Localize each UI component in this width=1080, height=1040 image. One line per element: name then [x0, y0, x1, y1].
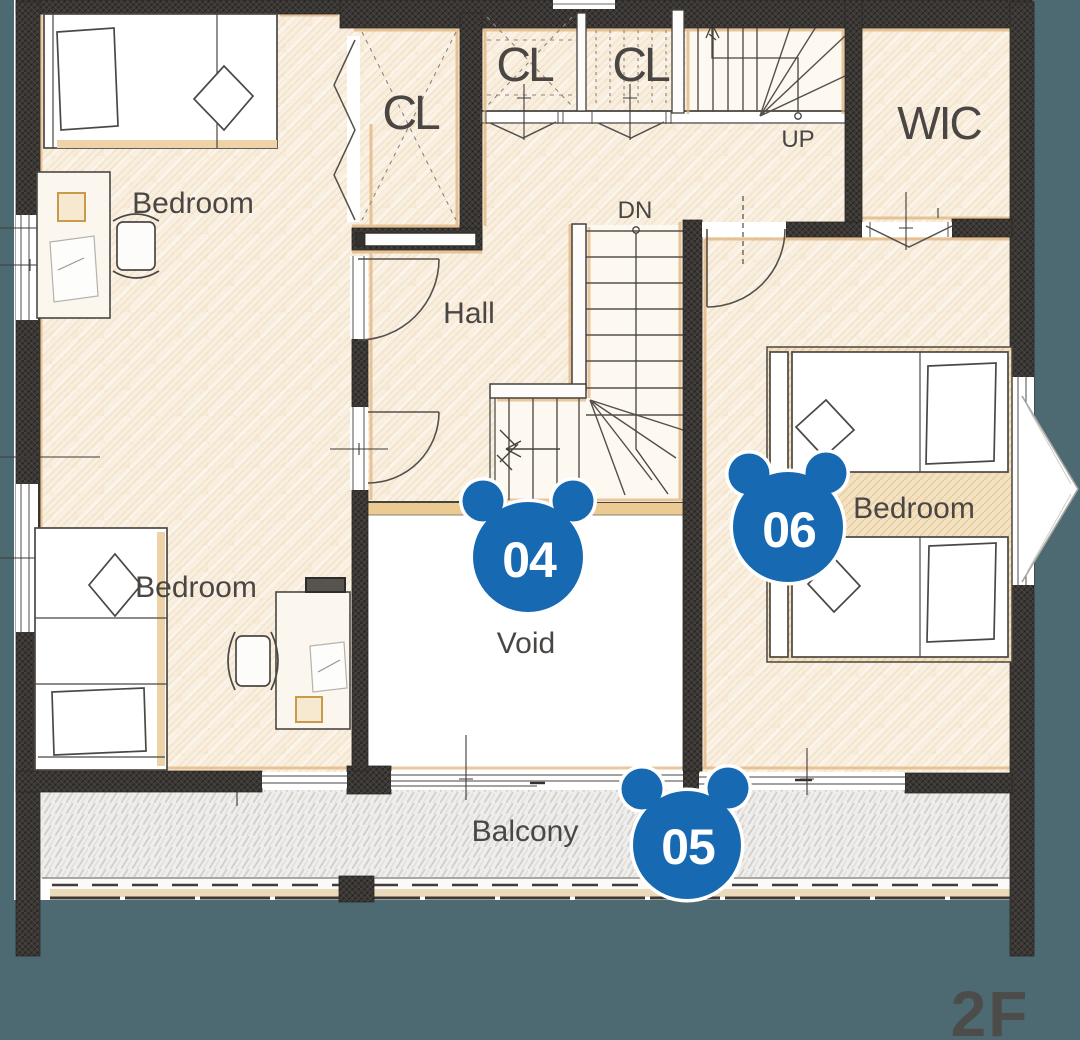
svg-text:Bedroom: Bedroom	[853, 492, 975, 525]
svg-text:CL: CL	[496, 39, 554, 92]
svg-text:CL: CL	[612, 39, 670, 92]
svg-text:05: 05	[661, 819, 715, 875]
svg-text:Bedroom: Bedroom	[135, 571, 257, 604]
svg-text:Hall: Hall	[443, 297, 495, 330]
svg-text:Void: Void	[497, 627, 555, 660]
svg-text:2F: 2F	[951, 978, 1030, 1040]
svg-text:CL: CL	[382, 87, 440, 140]
svg-text:Bedroom: Bedroom	[132, 187, 254, 220]
svg-text:DN: DN	[618, 197, 653, 224]
svg-text:04: 04	[502, 532, 557, 588]
svg-text:UP: UP	[781, 126, 814, 153]
svg-text:Balcony: Balcony	[472, 815, 579, 848]
svg-text:WIC: WIC	[897, 97, 981, 149]
svg-text:06: 06	[762, 502, 816, 558]
